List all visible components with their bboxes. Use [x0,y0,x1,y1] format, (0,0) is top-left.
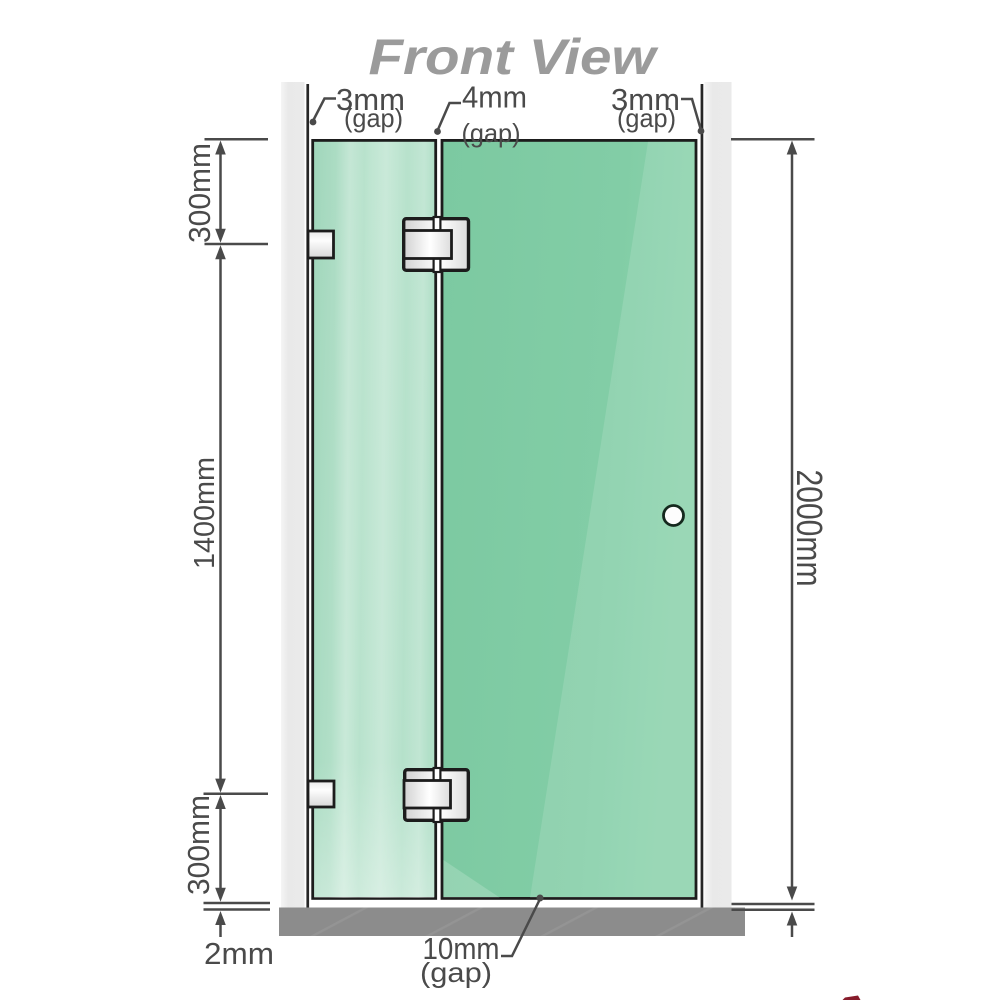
svg-text:1400mm: 1400mm [189,457,221,569]
svg-text:(gap): (gap) [344,103,403,133]
svg-text:2mm: 2mm [204,936,274,971]
svg-text:300mm: 300mm [182,143,217,243]
svg-text:4mm: 4mm [462,80,527,115]
svg-text:(gap): (gap) [462,118,521,148]
svg-text:300mm: 300mm [181,795,216,895]
svg-text:Front View: Front View [369,29,660,85]
svg-text:2000mm: 2000mm [789,470,830,587]
svg-text:(gap): (gap) [617,103,676,133]
svg-text:(gap): (gap) [420,957,492,988]
